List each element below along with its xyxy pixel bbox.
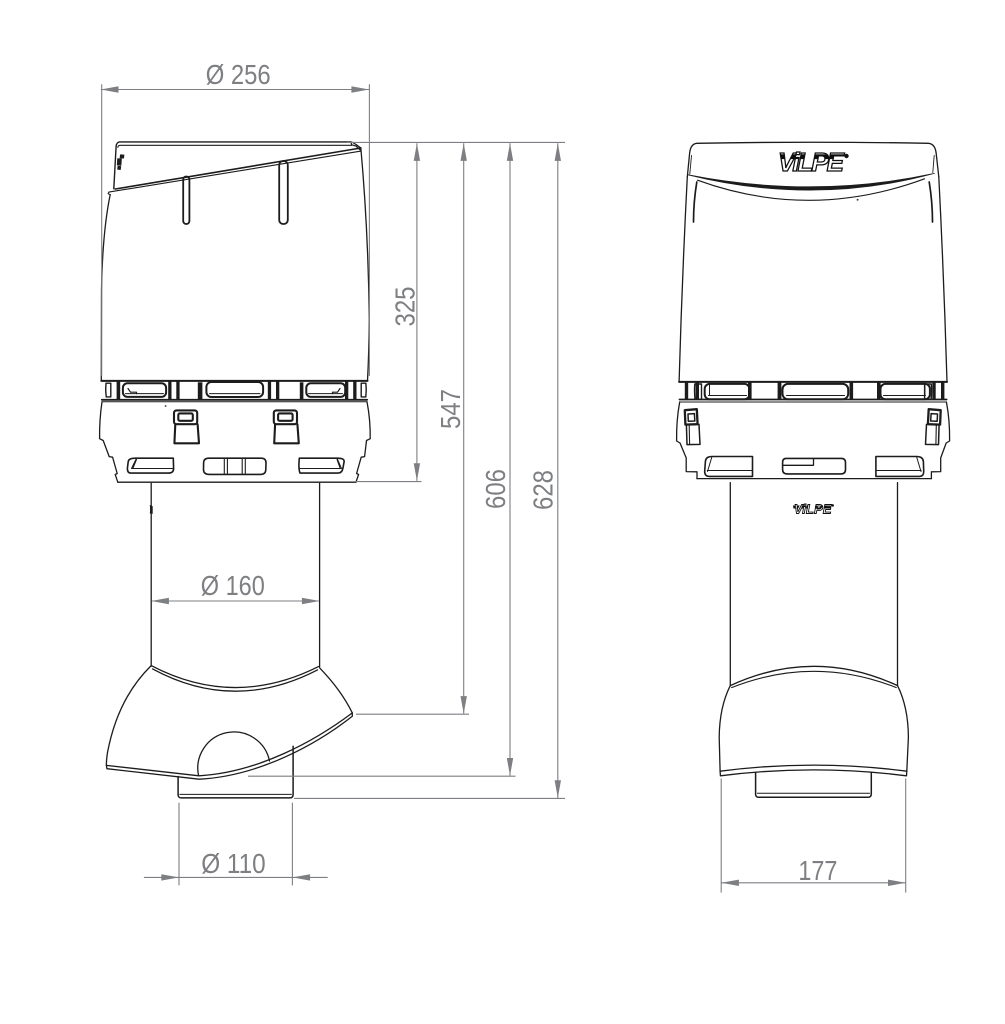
svg-text:ViLPE: ViLPE: [794, 502, 832, 517]
svg-text:606: 606: [480, 469, 511, 509]
svg-text:177: 177: [798, 855, 837, 886]
svg-text:Ø 110: Ø 110: [201, 848, 266, 879]
svg-text:547: 547: [435, 389, 466, 429]
svg-text:Ø 160: Ø 160: [201, 570, 265, 601]
svg-text:325: 325: [390, 287, 421, 327]
svg-text:ViLPE: ViLPE: [778, 147, 845, 177]
svg-text:628: 628: [528, 470, 559, 510]
svg-text:Ø 256: Ø 256: [206, 59, 271, 90]
